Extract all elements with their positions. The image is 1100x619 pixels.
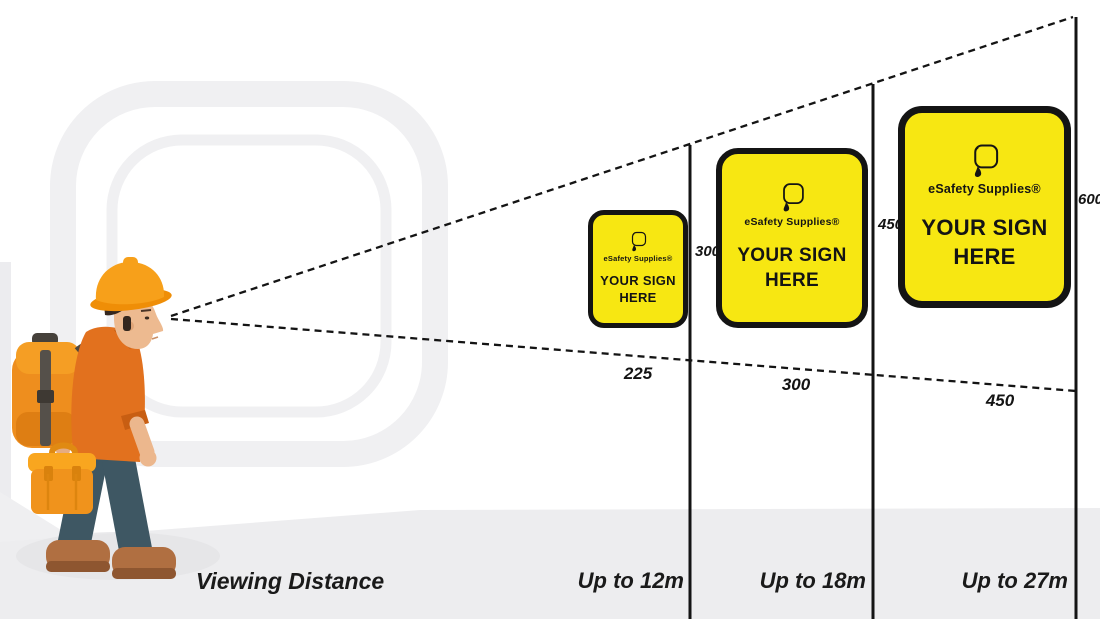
sign-title-text: YOUR SIGN HERE [737, 244, 846, 293]
sign-medium-300x450: eSafety Supplies® YOUR SIGN HERE [716, 148, 868, 328]
esafety-logo-icon [966, 143, 1003, 180]
distance-label-27m: Up to 27m [884, 568, 1068, 594]
sign-large-450x600: eSafety Supplies® YOUR SIGN HERE [898, 106, 1071, 308]
sign-brand-text: eSafety Supplies® [744, 216, 839, 228]
viewing-distance-label: Viewing Distance [160, 568, 420, 595]
floor [0, 0, 1100, 619]
esafety-logo-icon [627, 231, 649, 253]
viewing-distance-infographic: eSafety Supplies® YOUR SIGN HERE eSafety… [0, 0, 1100, 619]
sign-brand-text: eSafety Supplies® [928, 182, 1041, 196]
distance-label-18m: Up to 18m [682, 568, 866, 594]
sign-small-225x300: eSafety Supplies® YOUR SIGN HERE [588, 210, 688, 328]
sign-height-label-300: 300 [695, 243, 720, 260]
sign-title-text: YOUR SIGN HERE [600, 273, 676, 307]
sign-width-label-225: 225 [610, 364, 666, 384]
sign-title-text: YOUR SIGN HERE [921, 214, 1047, 271]
sign-height-label-450: 450 [878, 216, 903, 233]
sign-width-label-450: 450 [972, 391, 1028, 411]
esafety-logo-icon [776, 182, 808, 214]
sign-brand-text: eSafety Supplies® [604, 254, 673, 263]
sign-width-label-300: 300 [768, 375, 824, 395]
distance-label-12m: Up to 12m [500, 568, 684, 594]
sign-height-label-600: 600 [1078, 191, 1100, 208]
